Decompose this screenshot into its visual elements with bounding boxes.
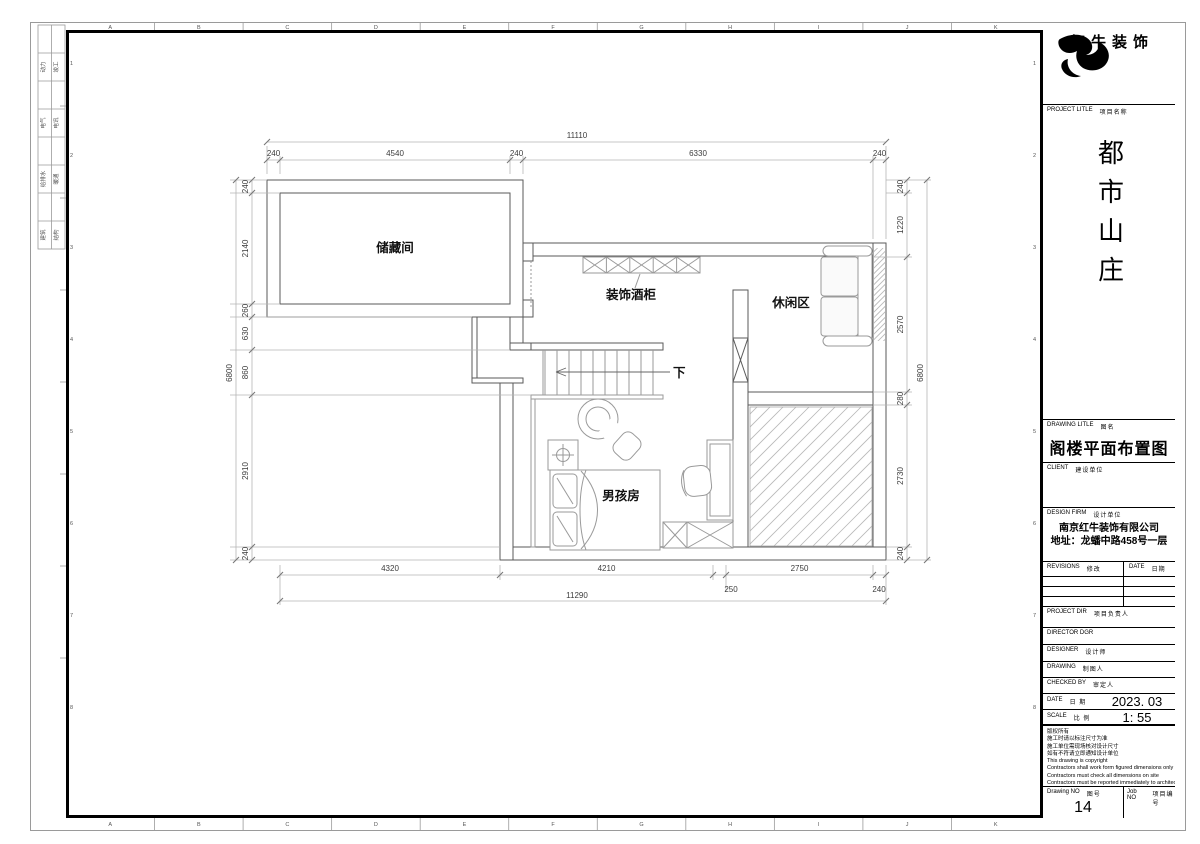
design-firm-label-cn: 设计单位 [1093, 510, 1121, 519]
project-name: 都市山庄 [1091, 139, 1128, 295]
dim-label: 2140 [241, 239, 250, 257]
border-letter-bottom: B [197, 822, 201, 828]
dim-label: 4320 [381, 564, 399, 573]
discipline-label: 电气 [39, 117, 47, 129]
sofa-arm-top [823, 246, 872, 256]
drawing-no-label-cn: 图号 [1087, 789, 1101, 798]
drawing-sheet: AABBCCDDEEFFGGHHIIJJKK1122334455667788动力… [0, 0, 1200, 844]
revisions-header: REVISIONS 修改 DATE 日期 [1043, 562, 1175, 577]
border-letter-bottom: I [818, 822, 820, 828]
design-firm-label: DESIGN FIRM 设计单位 [1043, 508, 1175, 519]
discipline-label: 电讯 [52, 117, 60, 129]
dim-label: 240 [241, 179, 250, 193]
director-label: DIRECTOR DGR [1047, 630, 1093, 636]
border-letter-bottom: D [374, 822, 378, 828]
hall-top-wall [523, 243, 873, 256]
border-letter-bottom: F [551, 822, 555, 828]
project-label: PROJECT LITLE 项目名称 [1043, 105, 1175, 116]
design-firm-name: 南京红牛装饰有限公司 [1043, 522, 1175, 535]
date-value: 2023. 03 [1099, 694, 1175, 709]
sofa-arm-bottom [823, 336, 872, 346]
border-number-left: 5 [70, 429, 73, 435]
job-no-label-cn: 项目编号 [1153, 789, 1175, 807]
border-letter-top: I [818, 25, 820, 31]
void-hatch-line [872, 403, 1021, 552]
scale-row: SCALE比 例 1: 55 [1043, 710, 1175, 726]
design-firm-address: 地址：龙蟠中路458号一层 [1043, 535, 1175, 548]
drawing-no-cell: Drawing NO图号 14 [1043, 787, 1123, 818]
checked-by-label: CHECKED BY [1047, 680, 1086, 689]
stair-top-edge [531, 343, 663, 350]
dim-top-total: 11110 [567, 131, 588, 140]
dim-label: 630 [241, 326, 250, 340]
design-firm-section: DESIGN FIRM 设计单位 南京红牛装饰有限公司 地址：龙蟠中路458号一… [1043, 508, 1175, 562]
stair-bottom-edge [531, 395, 663, 399]
dim-label: 260 [241, 303, 250, 317]
floor-plan: 下 [225, 131, 1021, 605]
sofa-back [858, 251, 872, 341]
project-name-section: PROJECT LITLE 项目名称 都市山庄 [1043, 105, 1175, 420]
project-dir-label-cn: 项目负责人 [1094, 609, 1129, 618]
border-letter-top: G [639, 25, 643, 31]
drawing-title-label: DRAWING LITLE 图名 [1043, 420, 1175, 431]
revision-row [1043, 587, 1175, 597]
date-col-label-cn: 日期 [1152, 564, 1166, 573]
border-number-right: 7 [1033, 613, 1036, 619]
dim-label: 2570 [896, 315, 905, 333]
shaft-bottom-wall [472, 378, 523, 383]
dim-label: 240 [896, 546, 905, 560]
border-number-left: 1 [70, 61, 73, 67]
client-label-cn: 建设单位 [1075, 465, 1103, 474]
border-letter-top: F [551, 25, 555, 31]
dim-left-total: 6800 [225, 364, 234, 382]
border-number-right: 4 [1033, 337, 1036, 343]
drawing-label-cn: 制图人 [1083, 664, 1104, 673]
border-letter-top: H [728, 25, 732, 31]
dim-label: 250 [724, 585, 738, 594]
border-letter-bottom: A [108, 822, 112, 828]
project-label-cn: 项目名称 [1100, 107, 1128, 116]
border-letter-top: B [197, 25, 201, 31]
job-no-label-en: Job NO [1127, 789, 1146, 807]
discipline-label: 给排水 [39, 170, 47, 187]
dim-label: 6330 [689, 149, 707, 158]
shaft-left-wall [472, 317, 477, 378]
wine-cabinet-leader [635, 274, 640, 288]
drawing-no-label-en: Drawing NO [1047, 789, 1080, 798]
border-letter-top: K [994, 25, 998, 31]
room-label-wine-cabinet: 装饰酒柜 [605, 287, 657, 302]
border-letter-bottom: G [639, 822, 643, 828]
number-section: Drawing NO图号 14 Job NO项目编号 [1043, 787, 1175, 818]
partition-wall [733, 290, 748, 547]
company-logo-icon [1043, 33, 1129, 79]
dim-right-total: 6800 [916, 364, 925, 382]
dim-label: 240 [241, 546, 250, 560]
date-label-cn: 日 期 [1070, 697, 1087, 706]
border-letter-top: J [906, 25, 909, 31]
armchair [578, 399, 644, 463]
border-number-left: 8 [70, 705, 73, 711]
copyright-note-line: Contractors shall work form figured dime… [1047, 765, 1175, 772]
copyright-note-line: 施工单位需现场核对设计尺寸 [1047, 744, 1175, 751]
border-letter-bottom: H [728, 822, 732, 828]
border-number-right: 8 [1033, 705, 1036, 711]
drawing-title-section: DRAWING LITLE 图名 阁楼平面布置图 [1043, 420, 1175, 463]
wine-cabinet [583, 257, 700, 288]
designer-row: DESIGNER设计师 [1043, 645, 1175, 662]
copyright-note-line: 施工时请以标注尺寸为准 [1047, 736, 1175, 743]
project-dir-row: PROJECT DIR项目负责人 [1043, 607, 1175, 628]
revision-row [1043, 597, 1175, 607]
border-letter-bottom: C [285, 822, 289, 828]
border-letter-top: A [108, 25, 112, 31]
sofa [821, 246, 872, 346]
checked-by-label-cn: 审定人 [1093, 680, 1114, 689]
storage-door-jamb-top [523, 243, 533, 261]
revisions-label-en: REVISIONS [1047, 564, 1080, 573]
drawing-title-label-en: DRAWING LITLE [1047, 422, 1093, 431]
copyright-note-line: Contractors must be reported immediately… [1047, 780, 1175, 787]
desk-chair [683, 465, 713, 498]
project-dir-label: PROJECT DIR [1047, 609, 1087, 618]
dim-label: 240 [896, 179, 905, 193]
wardrobe-body [663, 522, 733, 548]
stairs-down-label: 下 [673, 366, 686, 380]
dim-bottom-total: 11290 [566, 591, 588, 600]
client-label: CLIENT 建设单位 [1043, 463, 1175, 474]
border-letter-bottom: E [463, 822, 467, 828]
border-number-right: 1 [1033, 61, 1036, 67]
plan-canvas: AABBCCDDEEFFGGHHIIJJKK1122334455667788动力… [0, 0, 1200, 844]
border-number-right: 5 [1033, 429, 1036, 435]
border-number-left: 7 [70, 613, 73, 619]
copyright-note-line: 如有不符请立即通知设计单位 [1047, 751, 1175, 758]
stair-treads [545, 350, 653, 395]
border-number-left: 4 [70, 337, 73, 343]
discipline-label: 暖通 [52, 173, 60, 185]
border-number-right: 3 [1033, 245, 1036, 251]
room-label-boy: 男孩房 [602, 488, 640, 503]
dim-label: 4540 [386, 149, 404, 158]
dim-label: 280 [896, 391, 905, 405]
discipline-label: 建筑 [39, 229, 47, 241]
designer-label-cn: 设计师 [1085, 647, 1106, 656]
dim-label: 240 [872, 585, 886, 594]
dim-label: 240 [873, 149, 887, 158]
designer-label: DESIGNER [1047, 647, 1078, 656]
date-label-en: DATE [1047, 697, 1063, 706]
checked-by-row: CHECKED BY审定人 [1043, 678, 1175, 694]
dim-label: 860 [241, 365, 250, 379]
void-top-wall [748, 392, 873, 405]
job-no-cell: Job NO项目编号 [1123, 787, 1175, 818]
boyroom-furniture [548, 399, 733, 550]
dim-label: 240 [267, 149, 281, 158]
client-section: CLIENT 建设单位 [1043, 463, 1175, 508]
project-label-en: PROJECT LITLE [1047, 107, 1093, 116]
revisions-label-cn: 修改 [1087, 564, 1101, 573]
dim-label: 1220 [896, 216, 905, 234]
revisions-label: REVISIONS 修改 [1043, 562, 1101, 573]
logo-section: 红牛装饰 [1043, 30, 1175, 105]
discipline-label: 结构 [52, 229, 60, 241]
discipline-label: 动力 [39, 61, 47, 72]
wardrobe [663, 522, 733, 548]
dim-label: 2910 [241, 462, 250, 480]
inner-wall-line [531, 399, 535, 547]
drawing-title-label-cn: 图名 [1100, 422, 1114, 431]
border-letter-top: E [463, 25, 467, 31]
discipline-label: 竣工 [52, 61, 60, 73]
director-row: DIRECTOR DGR [1043, 628, 1175, 645]
dim-label: 240 [510, 149, 524, 158]
boyroom-left-wall [500, 383, 513, 560]
scale-label-cn: 比 例 [1074, 713, 1091, 722]
revisions-section: REVISIONS 修改 DATE 日期 [1043, 562, 1175, 607]
dim-label: 2730 [896, 467, 905, 485]
sofa-cushion-1 [821, 257, 858, 296]
date-row: DATE日 期 2023. 03 [1043, 694, 1175, 710]
title-block: 红牛装饰 PROJECT LITLE 项目名称 都市山庄 DRAWING LIT… [1040, 30, 1175, 818]
dim-label: 2750 [791, 564, 809, 573]
sheet-margin-marks: AABBCCDDEEFFGGHHIIJJKK1122334455667788动力… [38, 23, 1046, 830]
border-letter-bottom: J [906, 822, 909, 828]
border-number-left: 3 [70, 245, 73, 251]
border-letter-top: C [285, 25, 289, 31]
scale-label-en: SCALE [1047, 713, 1067, 722]
border-number-right: 2 [1033, 153, 1036, 159]
drawing-label: DRAWING [1047, 664, 1076, 673]
client-label-en: CLIENT [1047, 465, 1068, 474]
date-col-label: DATE 日期 [1125, 562, 1166, 573]
room-label-storage: 储藏间 [375, 240, 414, 255]
copyright-note-line: This drawing is copyright [1047, 758, 1175, 765]
drawing-title: 阁楼平面布置图 [1043, 435, 1175, 459]
copyright-note-line: Contractors must check all dimensions on… [1047, 773, 1175, 780]
dim-label: 4210 [598, 564, 616, 573]
copyright-notes: 版权所有施工时请以标注尺寸为准施工单位需现场核对设计尺寸如有不符请立即通知设计单… [1043, 726, 1175, 787]
date-col-label-en: DATE [1129, 564, 1145, 573]
design-firm-label-en: DESIGN FIRM [1047, 510, 1086, 519]
drawing-row: DRAWING制图人 [1043, 662, 1175, 678]
border-number-left: 6 [70, 521, 73, 527]
border-number-right: 6 [1033, 521, 1036, 527]
border-letter-bottom: K [994, 822, 998, 828]
revision-row [1043, 577, 1175, 587]
border-letter-top: D [374, 25, 378, 31]
sofa-cushion-2 [821, 297, 858, 336]
room-label-leisure: 休闲区 [771, 295, 810, 310]
border-number-left: 2 [70, 153, 73, 159]
drawing-no-value: 14 [1043, 799, 1123, 817]
scale-value: 1: 55 [1099, 710, 1175, 725]
